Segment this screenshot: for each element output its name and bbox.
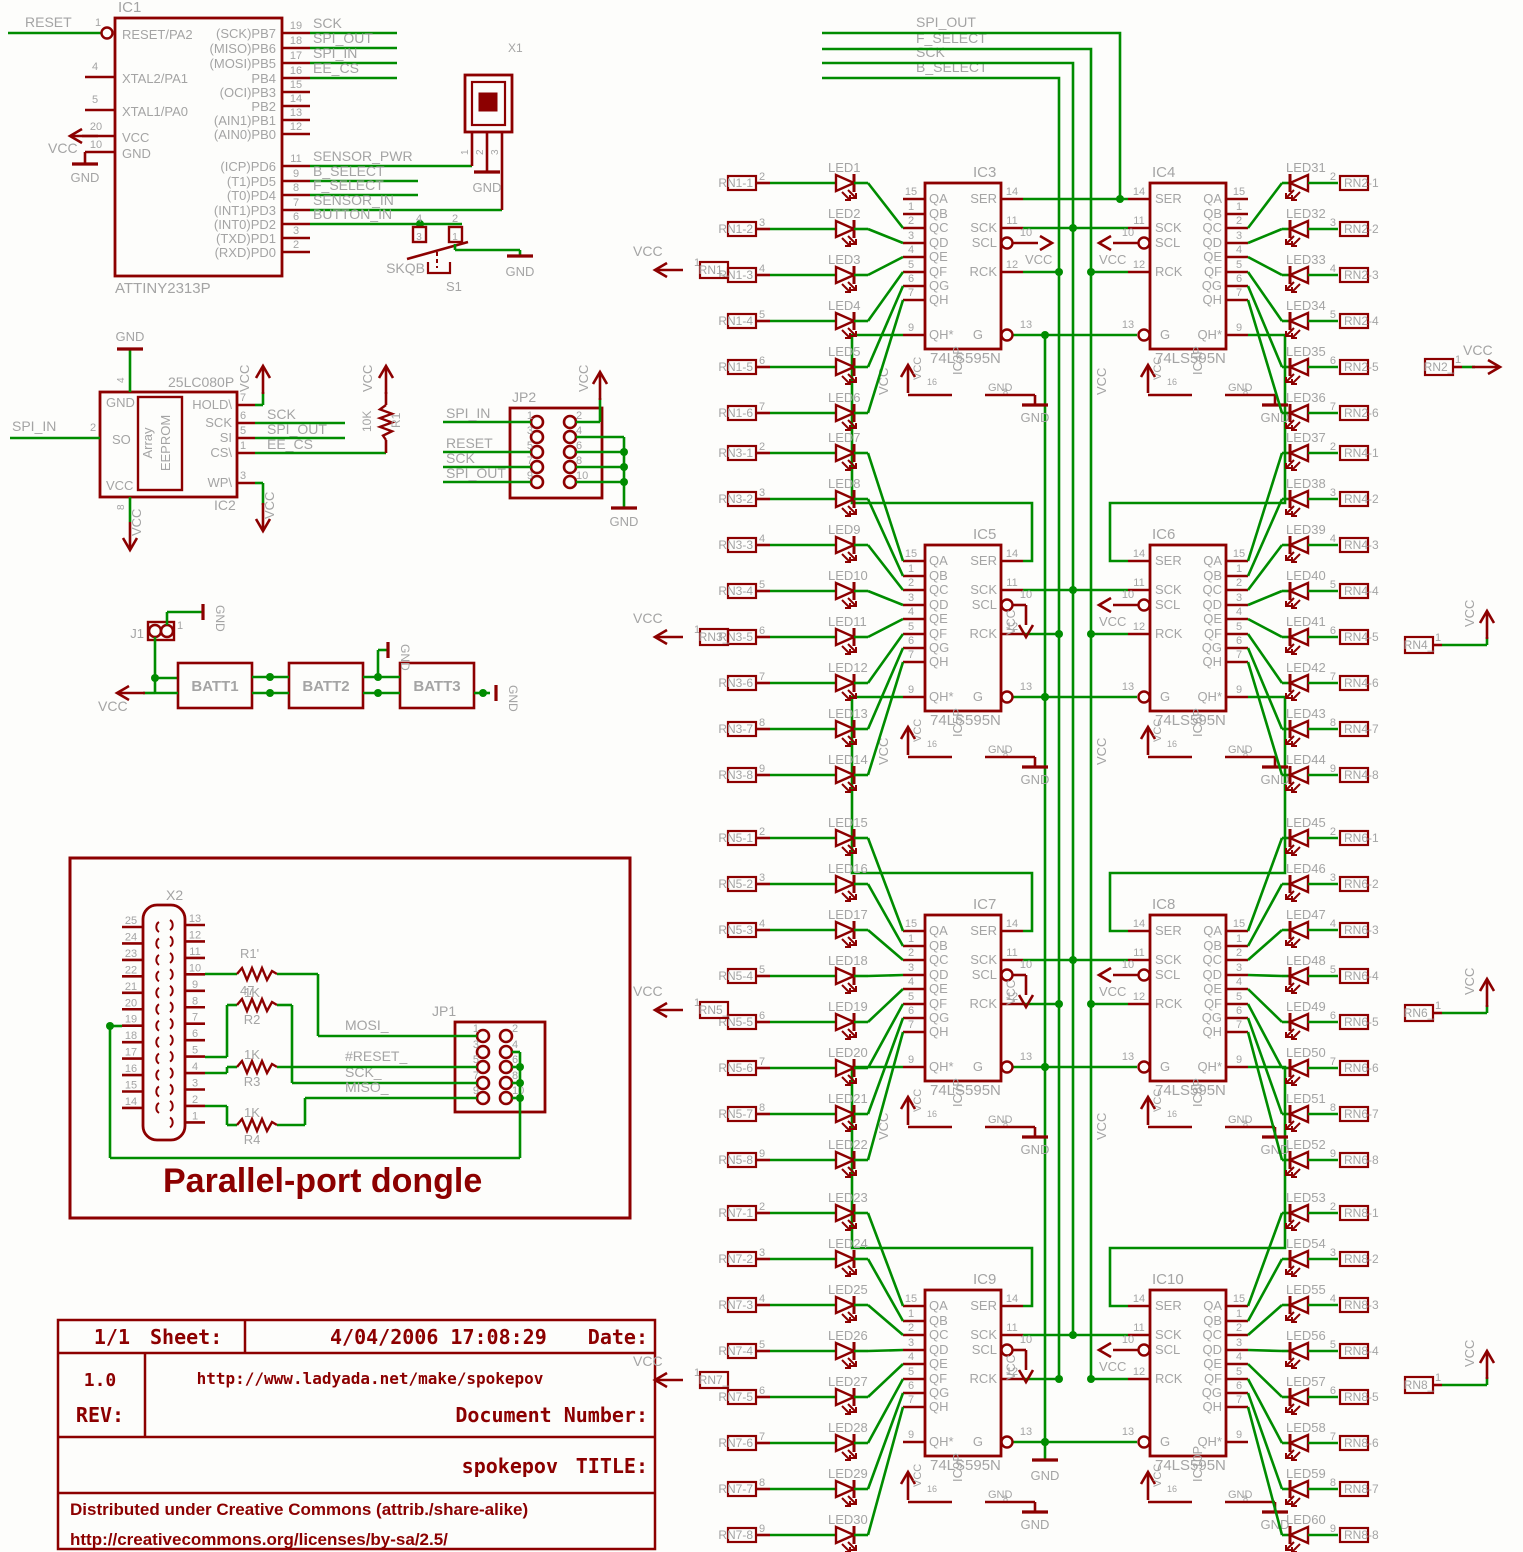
pin-name: QG [1202, 1010, 1222, 1025]
gnd-label: GND [213, 605, 227, 632]
pin-number: 4 [1236, 976, 1242, 988]
led-label: LED16 [828, 861, 868, 876]
wire [868, 1364, 903, 1397]
led-label: LED3 [828, 252, 861, 267]
gnd-label: GND [473, 180, 502, 195]
pin-name: QB [929, 1313, 948, 1328]
schematic-page: SPI_OUT F_SELECT SCK B_SELECT Parallel-p… [0, 0, 1523, 1552]
cascade-wire [852, 1067, 1032, 1306]
pin-name: QE [929, 611, 948, 626]
pin-number: 3 [1330, 217, 1336, 229]
db25-pin-cup [156, 1103, 159, 1113]
led-symbol [1290, 445, 1308, 461]
led-symbol [836, 1481, 854, 1497]
pin-number: 20 [90, 121, 102, 133]
led-emission-arrow [842, 646, 850, 654]
led-emission-arrow [1292, 1452, 1300, 1460]
vcc-label: VCC [633, 610, 663, 626]
sheet-value: 1/1 [94, 1325, 130, 1349]
db25-pin-cup [170, 1085, 173, 1095]
pin-number: 13 [1020, 319, 1032, 331]
wire [868, 1350, 903, 1351]
pin-name: SI [220, 430, 232, 445]
pin-name: QC [929, 582, 949, 597]
led-emission-arrow [1292, 847, 1300, 855]
led-label: LED47 [1286, 907, 1326, 922]
pin-number: 1 [240, 440, 246, 452]
pin-number: 1 [1236, 933, 1242, 945]
pin-number: 5 [1330, 579, 1336, 591]
cc-line2: http://creativecommons.org/licenses/by-s… [70, 1530, 448, 1549]
pin-number: 10 [1020, 1334, 1032, 1346]
pin-number: 6 [1236, 1380, 1242, 1392]
led-label: LED37 [1286, 430, 1326, 445]
pin-number: 13 [290, 107, 302, 119]
pin-name: QH* [1197, 327, 1222, 342]
gnd-label: GND [610, 514, 639, 529]
db25-pin-cup [170, 1019, 173, 1029]
pin-name: SCK [970, 952, 997, 967]
pin-number: 2 [1236, 215, 1242, 227]
led-symbol [1290, 1205, 1308, 1221]
pin-number: 1 [1435, 1372, 1441, 1384]
led-label: LED1 [828, 160, 861, 175]
pin-number: 2 [759, 441, 765, 453]
vcc-label: VCC [1004, 609, 1018, 635]
rn-ref: RN8_ [1404, 1378, 1435, 1392]
pin-number: 13 [1122, 1426, 1134, 1438]
pin-number: 3 [527, 425, 533, 437]
pin-number: 6 [1330, 1010, 1336, 1022]
pin-number: 5 [759, 579, 765, 591]
pin-number: 1 [1455, 354, 1461, 366]
pin-number: 4 [1330, 1293, 1336, 1305]
led-symbol [1290, 1481, 1308, 1497]
pin-name: SER [1155, 553, 1182, 568]
connector-pin-hole [500, 1092, 512, 1104]
junction-dot [1069, 586, 1077, 594]
led-symbol [1290, 1152, 1308, 1168]
part-value: 1K [244, 1047, 260, 1062]
db25-pin-cup [156, 988, 159, 998]
led-label: LED14 [828, 752, 868, 767]
pin-number: 8 [759, 717, 765, 729]
vcc-label: VCC [633, 1353, 663, 1369]
pin-name: (T0)PD4 [227, 188, 276, 203]
pin-number: 9 [1236, 1429, 1242, 1441]
pin-name: QC [929, 220, 949, 235]
pin-number: 14 [1133, 186, 1145, 198]
inverted-pin-circle [1139, 238, 1150, 249]
pin-name: RCK [1155, 996, 1183, 1011]
led-symbol [836, 1435, 854, 1451]
led-label: LED33 [1286, 252, 1326, 267]
wire [868, 257, 903, 275]
junction-dot [106, 1022, 114, 1030]
led-symbol [836, 1297, 854, 1313]
led-emission-arrow [842, 985, 850, 993]
gnd-label: GND [1021, 1517, 1050, 1532]
pin-number: 3 [293, 225, 299, 237]
pin-number: 2 [1330, 826, 1336, 838]
pin-name: QH [1203, 1024, 1223, 1039]
rn-ref: RN2-4 [1344, 314, 1379, 328]
pin-name: QB [929, 568, 948, 583]
net-label-b-select: B_SELECT [916, 59, 988, 75]
pin-number: 2 [908, 947, 914, 959]
led-symbol [836, 1014, 854, 1030]
pin-number: 9 [293, 168, 299, 180]
pin-number: 20 [125, 997, 137, 1009]
pin-name: QE [929, 249, 948, 264]
pin-number: 5 [1236, 259, 1242, 271]
inverted-pin-circle [102, 28, 113, 39]
pin-name: SCL [1155, 967, 1180, 982]
rn-ref: RN7-2 [718, 1252, 753, 1266]
schematic-canvas: SPI_OUT F_SELECT SCK B_SELECT Parallel-p… [0, 0, 1523, 1552]
pin-number: 2 [1330, 1201, 1336, 1213]
pin-name: QD [1203, 1342, 1223, 1357]
led-symbol [836, 267, 854, 283]
net-label: SPI_IN [313, 45, 357, 61]
inverted-pin-circle [1139, 692, 1150, 703]
pin-number: 4 [416, 213, 422, 225]
led-symbol [1290, 1527, 1308, 1543]
led-symbol [836, 583, 854, 599]
junction-dot [1069, 224, 1077, 232]
led-symbol [1290, 830, 1308, 846]
ic-ref: IC9 [973, 1271, 996, 1288]
pin-name: SCK [205, 415, 232, 430]
vcc-label: VCC [237, 365, 252, 392]
junction-dot [1055, 268, 1063, 276]
led-symbol [1290, 1435, 1308, 1451]
rn-ref: RN4-7 [1344, 722, 1379, 736]
pin-number: 7 [759, 1056, 765, 1068]
gnd-label: GND [1228, 382, 1253, 394]
pin-name: VCC [106, 478, 133, 493]
rn-ref: RN3_ [699, 630, 730, 644]
pin-number: 7 [1330, 401, 1336, 413]
led-emission-arrow [1292, 1314, 1300, 1322]
rn-ref: RN6-7 [1344, 1107, 1379, 1121]
led-emission-arrow [842, 422, 850, 430]
rn-ref: RN7-1 [718, 1206, 753, 1220]
pin-number: 9 [759, 763, 765, 775]
led-symbol [1290, 1343, 1308, 1359]
pin-number: 9 [1236, 1054, 1242, 1066]
led-label: LED39 [1286, 522, 1326, 537]
led-emission-arrow [1292, 284, 1300, 292]
led-label: LED57 [1286, 1374, 1326, 1389]
pin-name: SER [970, 1298, 997, 1313]
pin-name: QB [1203, 1313, 1222, 1328]
sensor-window [479, 93, 497, 111]
led-emission-arrow [842, 1077, 850, 1085]
pin-name: QA [929, 191, 948, 206]
pin-number: 3 [1236, 962, 1242, 974]
junction-dot [479, 689, 487, 697]
pin-number: 3 [908, 1337, 914, 1349]
pin-name: G [1160, 1059, 1170, 1074]
pin-number: 9 [192, 979, 198, 991]
led-symbol [836, 922, 854, 938]
rn-ref: RN5_ [699, 1003, 730, 1017]
wire [1248, 975, 1282, 976]
led-symbol [1290, 221, 1308, 237]
pin-name: SCK [1155, 1327, 1182, 1342]
rev-value: 1.0 [84, 1370, 117, 1391]
net-label: SPI_OUT [446, 465, 506, 481]
pin-name: QC [1203, 952, 1223, 967]
pin-name: VCC [122, 130, 149, 145]
pin-number: 4 [1330, 263, 1336, 275]
pin-number: 9 [908, 1429, 914, 1441]
pin-name: QH [929, 1024, 949, 1039]
junction-dot [620, 478, 628, 486]
pin-number: 1 [908, 933, 914, 945]
bus-spi-out [822, 33, 1120, 199]
pin-name: SO [112, 432, 131, 447]
gnd-label: GND [506, 685, 520, 712]
pin-number: 17 [290, 50, 302, 62]
pin-name: QH [1203, 292, 1223, 307]
connector-pin-hole [564, 416, 576, 428]
pin-number: 7 [759, 401, 765, 413]
led-emission-arrow [1292, 985, 1300, 993]
net-label-spi-out: SPI_OUT [916, 14, 976, 30]
led-symbol [836, 1389, 854, 1405]
vcc-label: VCC [1004, 979, 1018, 1005]
pin-name: QF [1204, 626, 1222, 641]
pin-number: 1 [95, 17, 101, 29]
gnd-label: GND [1228, 1114, 1253, 1126]
pin-number: 3 [1236, 592, 1242, 604]
led-emission-arrow [842, 692, 850, 700]
led-label: LED42 [1286, 660, 1326, 675]
pin-number: 8 [576, 455, 582, 467]
ic-value: ATTINY2313P [115, 280, 211, 297]
led-symbol [1290, 1106, 1308, 1122]
pin-name: QG [929, 640, 949, 655]
pin-name: QA [1203, 1298, 1222, 1313]
pin-number: 9 [908, 684, 914, 696]
pin-number: 5 [1236, 1366, 1242, 1378]
pin-number: 9 [759, 1148, 765, 1160]
pin-number: 16 [1167, 1109, 1177, 1119]
pin-number: 3 [1330, 872, 1336, 884]
led-emission-arrow [842, 330, 850, 338]
junction-dot [1055, 630, 1063, 638]
led-label: LED59 [1286, 1466, 1326, 1481]
pin-number: 10 [90, 139, 102, 151]
pin-number: 10 [1122, 589, 1134, 601]
rn-ref: RN1-6 [718, 406, 753, 420]
net-label: SPI_IN [446, 405, 490, 421]
led-label: LED17 [828, 907, 868, 922]
pin-name: XTAL1/PA0 [122, 104, 188, 119]
pin-name: QE [929, 1356, 948, 1371]
led-label: LED60 [1286, 1512, 1326, 1527]
power-ref: IC3P [950, 346, 965, 375]
led-symbol [1290, 721, 1308, 737]
led-emission-arrow [1292, 554, 1300, 562]
pin-number: 6 [908, 1380, 914, 1392]
led-emission-arrow [1292, 1268, 1300, 1276]
rn-ref: RN3-7 [718, 722, 753, 736]
gnd-label: GND [506, 264, 535, 279]
rn-ref: RN6-5 [1344, 1015, 1379, 1029]
pin-number: 7 [1236, 1394, 1242, 1406]
gnd-label: GND [988, 1114, 1013, 1126]
rn-ref: RN8-4 [1344, 1344, 1379, 1358]
pin-name: SER [970, 191, 997, 206]
pin-number: 12 [1133, 1366, 1145, 1378]
connector-pin-hole [500, 1030, 512, 1042]
vcc-label: VCC [98, 698, 128, 714]
pin-number: 11 [1006, 947, 1017, 959]
rn-ref: RN6-4 [1344, 969, 1379, 983]
led-symbol [836, 876, 854, 892]
pin-name: G [973, 689, 983, 704]
pin-number: 1 [527, 410, 533, 422]
part-value: 1K [244, 1105, 260, 1120]
rn-ref: RN4-8 [1344, 768, 1379, 782]
inverted-pin-circle [1002, 1437, 1013, 1448]
inverted-pin-circle [1139, 330, 1150, 341]
pin-number: 7 [908, 1394, 914, 1406]
pin-number: 5 [908, 621, 914, 633]
pin-number: 24 [125, 931, 137, 943]
pin-number: 9 [908, 1054, 914, 1066]
pin-number: 11 [1006, 215, 1017, 227]
title-block: 1/1 Sheet: 4/04/2006 17:08:29 Date: 1.0 … [58, 1320, 655, 1549]
ic-ref: R1' [240, 946, 259, 961]
rn-ref: RN4-2 [1344, 492, 1379, 506]
pin-number: 9 [1330, 763, 1336, 775]
pin-number: 10 [1020, 589, 1032, 601]
inverted-pin-circle [1002, 330, 1013, 341]
pin-name: SCL [1155, 1342, 1180, 1357]
led-emission-arrow [1292, 784, 1300, 792]
rn-ref: RN3-6 [718, 676, 753, 690]
led-label: LED46 [1286, 861, 1326, 876]
pin-number: 15 [905, 548, 917, 560]
pin-number: 2 [908, 577, 914, 589]
pin-name: QA [929, 923, 948, 938]
title-label: TITLE: [576, 1454, 648, 1478]
pin-name: G [1160, 689, 1170, 704]
gnd-label: GND [1228, 744, 1253, 756]
pin-name: QD [929, 967, 949, 982]
pin-number: 4 [908, 976, 914, 988]
pin-name: QG [929, 278, 949, 293]
led-symbol [836, 1251, 854, 1267]
pin-name: SCL [972, 235, 997, 250]
led-label: LED35 [1286, 344, 1326, 359]
pin-number: 6 [908, 273, 914, 285]
pin-number: 11 [1133, 947, 1144, 959]
ic-ref: X2 [166, 887, 183, 903]
pin-name: QF [1204, 264, 1222, 279]
led-emission-arrow [1292, 600, 1300, 608]
vcc-label: VCC [1025, 252, 1052, 267]
led-emission-arrow [1292, 1031, 1300, 1039]
junction-dot [1116, 195, 1124, 203]
pin-number: 1 [908, 1308, 914, 1320]
pin-name: (MOSI)PB5 [210, 56, 276, 71]
led-emission-arrow [842, 847, 850, 855]
pin-name: RCK [970, 264, 998, 279]
pin-number: 7 [192, 1012, 198, 1024]
pin-number: 15 [905, 186, 917, 198]
wire [868, 183, 903, 228]
pin-number: 6 [759, 1385, 765, 1397]
led-symbol [836, 313, 854, 329]
ic-value: 25LC080P [168, 374, 234, 390]
pin-number: 10 [1122, 1334, 1134, 1346]
led-emission-arrow [842, 192, 850, 200]
pin-number: 6 [759, 625, 765, 637]
rn-ref: RN5-6 [718, 1061, 753, 1075]
led-symbol [1290, 1014, 1308, 1030]
led-label: LED8 [828, 476, 861, 491]
net-label: RESET [25, 14, 72, 30]
pin-number: 8 [293, 182, 299, 194]
pin-name: SER [1155, 1298, 1182, 1313]
led-label: LED23 [828, 1190, 868, 1205]
pin-name: QF [929, 996, 947, 1011]
led-label: LED6 [828, 390, 861, 405]
part-value: 10K [360, 411, 374, 432]
pin-number: 6 [1330, 355, 1336, 367]
wire [868, 619, 903, 637]
wire [868, 989, 903, 1022]
junction-dot [266, 673, 274, 681]
wire [1248, 229, 1282, 243]
pin-number: 7 [908, 287, 914, 299]
pin-name: RESET/PA2 [122, 27, 193, 42]
pin-number: 14 [1006, 548, 1018, 560]
led-label: LED54 [1286, 1236, 1326, 1251]
vcc-label: VCC [1094, 1113, 1109, 1140]
pin-number: 4 [116, 377, 127, 383]
led-label: LED15 [828, 815, 868, 830]
vcc-label: VCC [1152, 1089, 1164, 1112]
net-label: SPI_IN [12, 418, 56, 434]
led-emission-arrow [842, 1406, 850, 1414]
pin-number: 10 [189, 962, 201, 974]
pin-number: 4 [92, 61, 98, 73]
pin-name: (OCI)PB3 [220, 85, 276, 100]
pin-number: 14 [1133, 918, 1145, 930]
db25-pin-cup [156, 971, 159, 981]
wire [868, 453, 903, 561]
led-label: LED34 [1286, 298, 1326, 313]
led-emission-arrow [842, 600, 850, 608]
inverted-pin-circle [1139, 1437, 1150, 1448]
pin-number: 16 [125, 1063, 137, 1075]
pin-number: 9 [1330, 1523, 1336, 1535]
pin-number: 10 [576, 470, 588, 482]
junction-dot [516, 1063, 524, 1071]
pin-number: 10 [1122, 227, 1134, 239]
vcc-label: VCC [1152, 357, 1164, 380]
led-emission-arrow [1292, 508, 1300, 516]
ic-ref: JP1 [432, 1003, 456, 1019]
inverted-pin-circle [1002, 600, 1013, 611]
rn-ref: RN8-7 [1344, 1482, 1379, 1496]
